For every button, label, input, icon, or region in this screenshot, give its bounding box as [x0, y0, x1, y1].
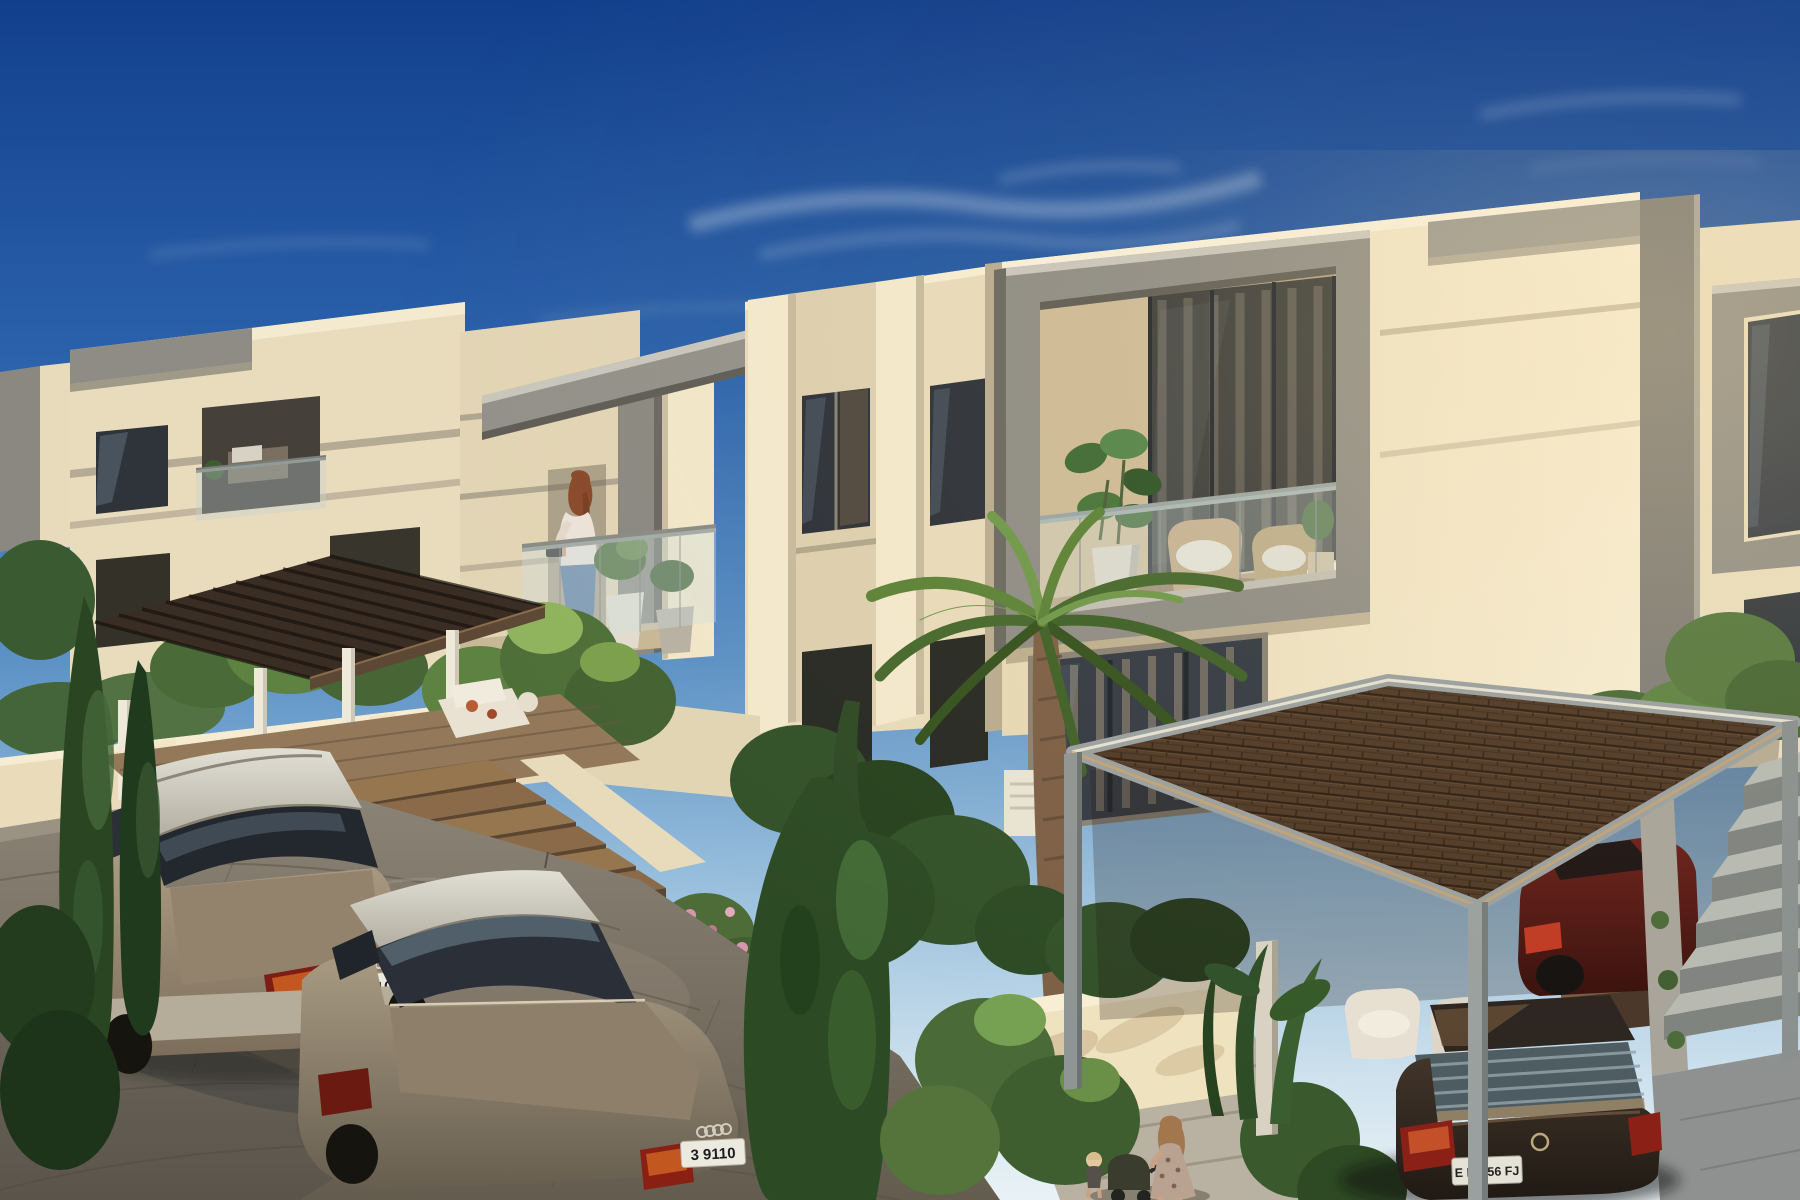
architectural-render-scene: 3 9110 3 9110	[0, 0, 1800, 1200]
warm-light-overlay	[0, 0, 1800, 1200]
